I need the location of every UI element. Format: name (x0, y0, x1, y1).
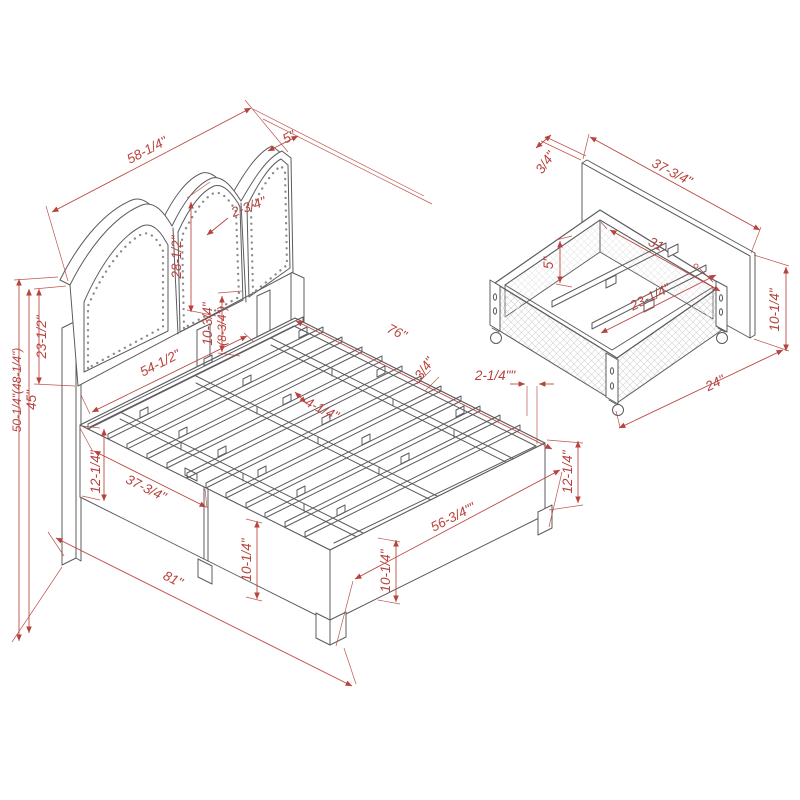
dim-deck-to-rail: 10-3/4" (200, 301, 215, 345)
dim-footboard-rail-height: 12-1/4" (560, 449, 575, 493)
dim-panel-height: 10-1/4" (767, 287, 782, 331)
dim-footboard-height: 10-1/4" (378, 548, 393, 592)
dim-drawer-front-height: 10-1/4" (239, 537, 254, 581)
dim-inner-depth: 5" (541, 256, 556, 270)
dim-rail-offset: 2-1/4"" (474, 368, 517, 383)
dim-overall-height: 50-1/4"(48-1/4") (10, 348, 24, 433)
dim-headboard-height: 45" (24, 389, 39, 410)
bed-dimension-diagram: 58-1/4" 5" 2-3/4" 28-1/2" 10-3/4" (8-3/4… (0, 0, 800, 800)
dim-upholstery-height: 23-1/2" (34, 314, 49, 359)
dimension-diagram-page: 58-1/4" 5" 2-3/4" 28-1/2" 10-3/4" (8-3/4… (0, 0, 800, 800)
dim-panel-height: 28-1/2" (169, 234, 184, 279)
dim-side-rail-height: 12-1/4" (88, 449, 103, 493)
dim-deck-to-rail-alt: (8-3/4") (215, 306, 229, 346)
